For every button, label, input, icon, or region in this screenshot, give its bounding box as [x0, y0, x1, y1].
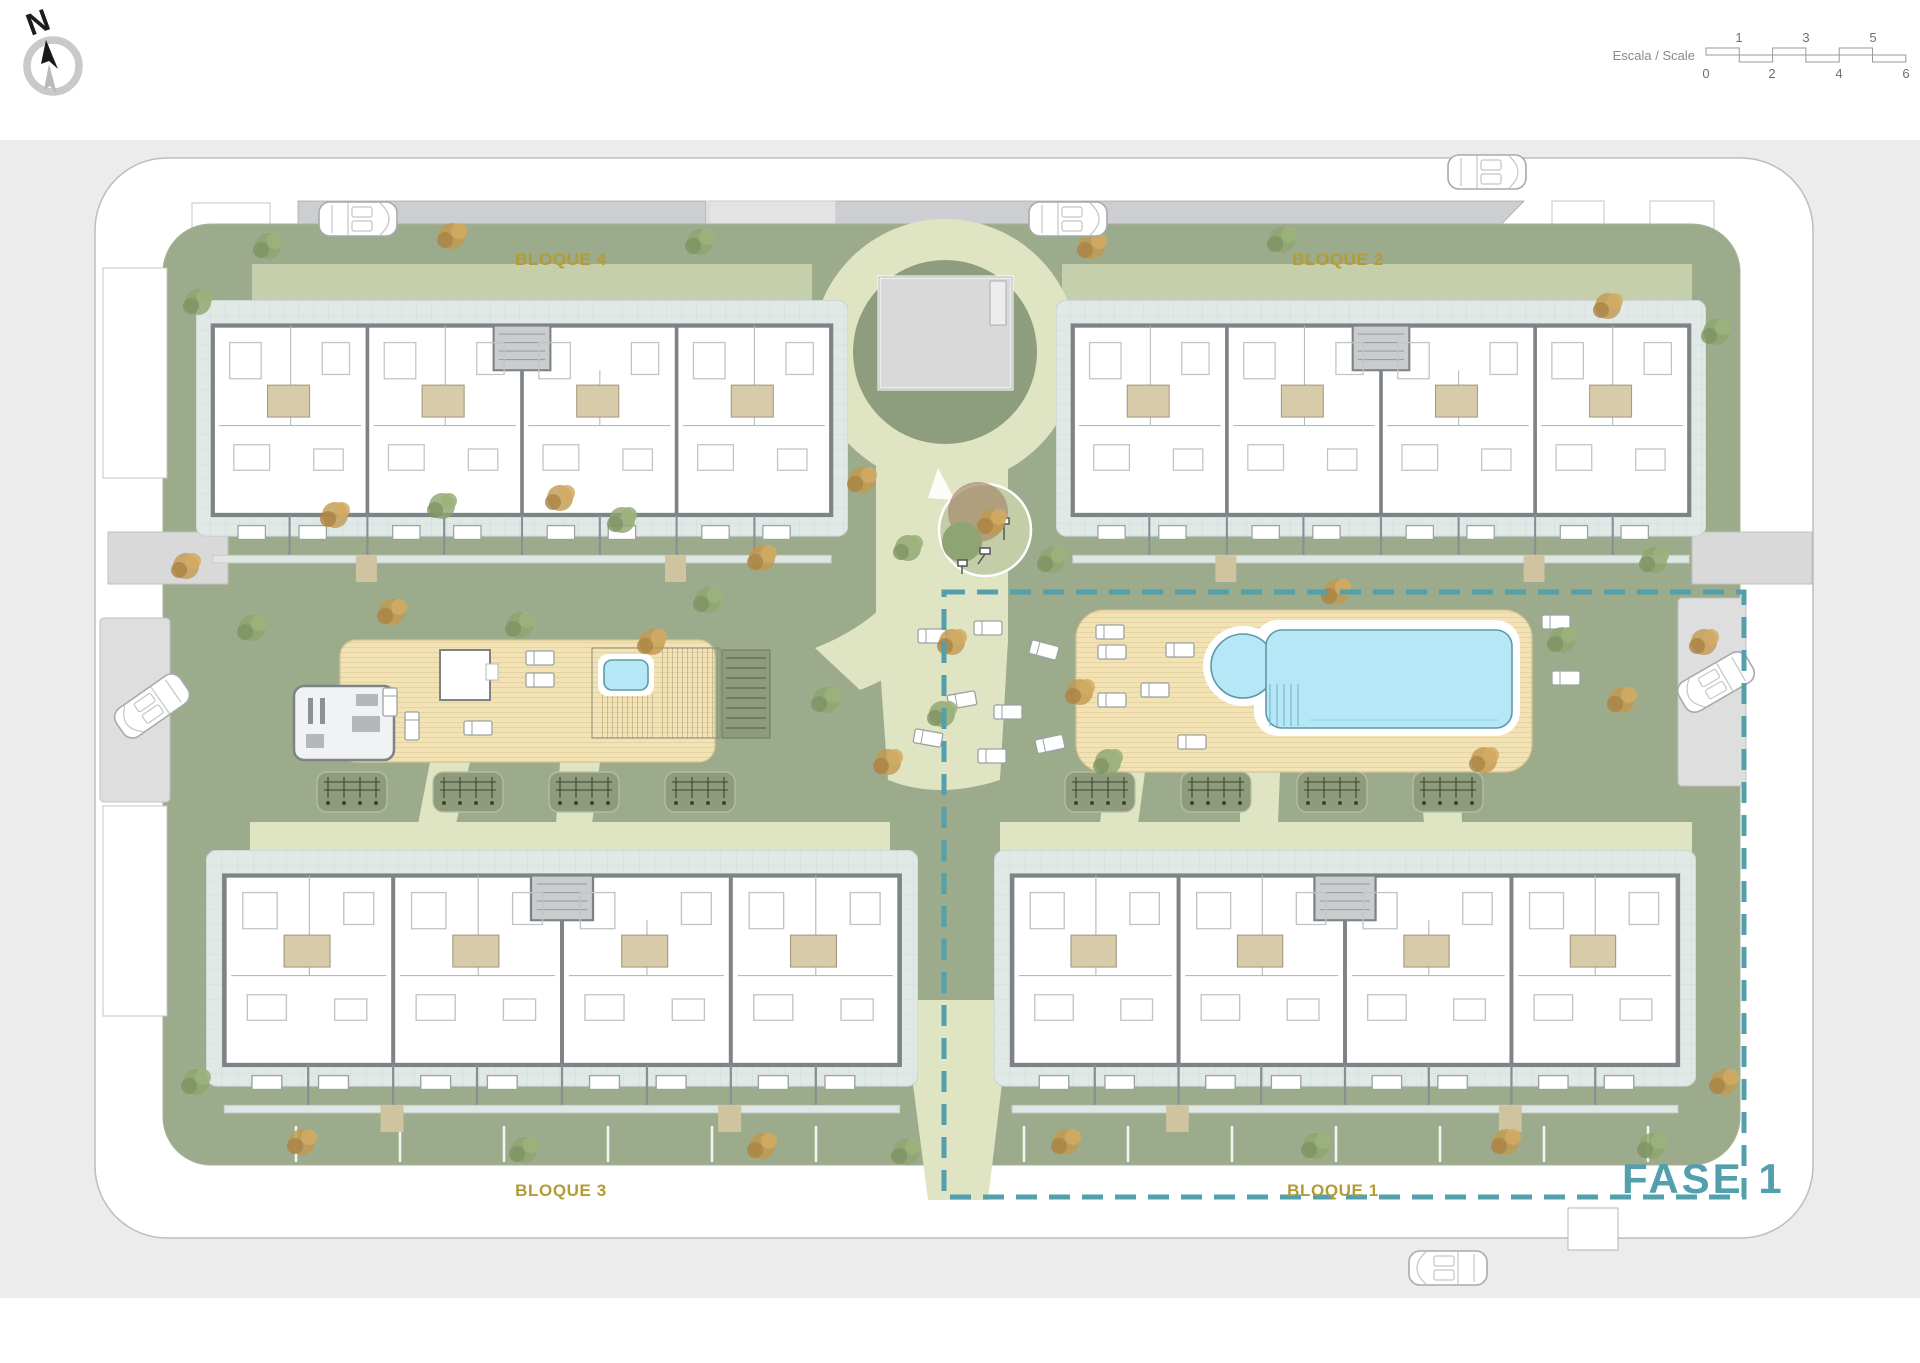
label-bloque4: BLOQUE 4 — [515, 250, 607, 269]
site-plan: BLOQUE 4 BLOQUE 2 BLOQUE 3 BLOQUE 1 FASE… — [0, 0, 1920, 1358]
boundary-gate — [1568, 1208, 1618, 1250]
car-icon — [1409, 1251, 1487, 1285]
svg-text:2: 2 — [1768, 66, 1775, 81]
east-entrance-path — [1692, 532, 1812, 584]
svg-text:0: 0 — [1702, 66, 1709, 81]
label-bloque3: BLOQUE 3 — [515, 1181, 607, 1200]
label-bloque1: BLOQUE 1 — [1287, 1181, 1379, 1200]
west-entrance-path — [108, 532, 228, 584]
label-bloque2: BLOQUE 2 — [1292, 250, 1384, 269]
svg-text:6: 6 — [1902, 66, 1909, 81]
amenity-deck — [294, 640, 770, 762]
central-plaza — [853, 260, 1037, 444]
svg-text:5: 5 — [1869, 30, 1876, 45]
gym-building — [294, 686, 394, 760]
fase1-label: FASE 1 — [1622, 1155, 1785, 1202]
spa-area — [592, 648, 770, 738]
scale-label: Escala / Scale — [1613, 48, 1695, 63]
car-icon — [1448, 155, 1526, 189]
svg-text:4: 4 — [1835, 66, 1842, 81]
car-icon — [1029, 202, 1107, 236]
main-pool — [1266, 630, 1512, 728]
car-icon — [319, 202, 397, 236]
pool-deck — [1076, 610, 1532, 772]
svg-text:3: 3 — [1802, 30, 1809, 45]
jacuzzi — [604, 660, 648, 690]
pavilion — [440, 650, 490, 700]
site-plan-page: BLOQUE 4 BLOQUE 2 BLOQUE 3 BLOQUE 1 FASE… — [0, 0, 1920, 1358]
svg-text:1: 1 — [1735, 30, 1742, 45]
